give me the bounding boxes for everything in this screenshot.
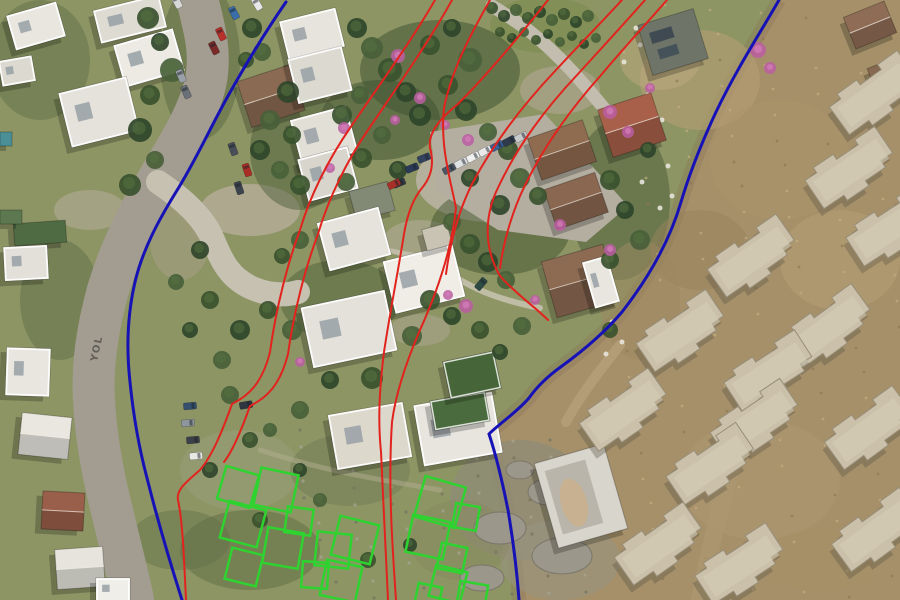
building-roof bbox=[96, 578, 130, 600]
ground-speckle bbox=[683, 431, 686, 434]
ground-speckle bbox=[719, 59, 722, 62]
ground-speckle bbox=[772, 88, 775, 91]
tree-highlight bbox=[294, 178, 305, 189]
rooftop-unit bbox=[5, 66, 14, 75]
ground-speckle bbox=[798, 266, 801, 269]
bougainvillea-highlight bbox=[557, 221, 563, 227]
tree-highlight bbox=[514, 171, 525, 182]
ground-speckle bbox=[788, 216, 791, 219]
bougainvillea-highlight bbox=[648, 85, 653, 90]
ground-speckle bbox=[877, 473, 880, 476]
scrub-speckle bbox=[529, 515, 532, 518]
scrub-speckle bbox=[407, 561, 410, 564]
tree-highlight bbox=[149, 153, 159, 163]
tree-highlight bbox=[532, 189, 542, 199]
ground-speckle bbox=[690, 182, 693, 185]
building-roof bbox=[0, 210, 22, 224]
ground-speckle bbox=[817, 93, 820, 96]
ground-speckle bbox=[855, 347, 858, 350]
tree-highlight bbox=[400, 85, 411, 96]
tree-highlight bbox=[205, 464, 214, 473]
scrub-speckle bbox=[405, 527, 408, 530]
tree-highlight bbox=[556, 37, 562, 43]
bougainvillea-highlight bbox=[625, 128, 631, 134]
tree-highlight bbox=[462, 51, 475, 64]
tree-highlight bbox=[392, 163, 402, 173]
scrub-speckle bbox=[476, 474, 479, 477]
ground-speckle bbox=[642, 478, 645, 481]
ground-speckle bbox=[800, 292, 803, 295]
car-body bbox=[186, 436, 200, 444]
tree-highlight bbox=[354, 88, 364, 98]
scrub-speckle bbox=[511, 439, 514, 442]
bougainvillea-highlight bbox=[465, 136, 471, 142]
ground-speckle bbox=[738, 486, 741, 489]
ground-speckle bbox=[805, 17, 808, 20]
tree-highlight bbox=[281, 84, 293, 96]
ground-speckle bbox=[834, 494, 837, 497]
tree-highlight bbox=[592, 33, 598, 39]
boulder bbox=[506, 461, 534, 479]
scrub-speckle bbox=[317, 521, 320, 524]
ground-speckle bbox=[865, 397, 868, 400]
tree-highlight bbox=[500, 11, 507, 18]
ground-speckle bbox=[686, 130, 689, 133]
ground-speckle bbox=[796, 240, 799, 243]
scrub-speckle bbox=[422, 586, 425, 589]
scrub-speckle bbox=[547, 591, 550, 594]
tree-highlight bbox=[459, 102, 471, 114]
ground-speckle bbox=[700, 232, 703, 235]
ground-speckle bbox=[681, 405, 684, 408]
bougainvillea-highlight bbox=[298, 359, 303, 364]
tree-highlight bbox=[634, 233, 645, 244]
tree-highlight bbox=[315, 494, 323, 502]
tree-highlight bbox=[194, 243, 204, 253]
ground-speckle bbox=[678, 106, 681, 109]
tree-highlight bbox=[234, 323, 245, 334]
tree-highlight bbox=[446, 309, 456, 319]
tree-highlight bbox=[365, 370, 377, 382]
scrub-speckle bbox=[584, 590, 587, 593]
scrub-speckle bbox=[302, 496, 305, 499]
ground-speckle bbox=[757, 313, 760, 316]
tree-highlight bbox=[277, 250, 286, 259]
tree-highlight bbox=[495, 346, 504, 355]
bougainvillea-highlight bbox=[328, 165, 333, 170]
ground-speckle bbox=[714, 334, 717, 337]
tree-highlight bbox=[464, 171, 474, 181]
scrub-speckle bbox=[441, 509, 444, 512]
tree-highlight bbox=[524, 13, 531, 20]
scrub-speckle bbox=[318, 538, 321, 541]
rock bbox=[670, 194, 675, 199]
tree-highlight bbox=[516, 319, 526, 329]
scrub-speckle bbox=[512, 456, 515, 459]
tree-highlight bbox=[274, 163, 284, 173]
scrub-speckle bbox=[369, 545, 372, 548]
scrub-speckle bbox=[494, 550, 497, 553]
building-roof bbox=[0, 132, 12, 146]
ground-speckle bbox=[791, 515, 794, 518]
existing-building bbox=[11, 412, 72, 465]
tree-highlight bbox=[224, 388, 234, 398]
scrub-speckle bbox=[442, 526, 445, 529]
car-windshield bbox=[191, 403, 194, 409]
tree-highlight bbox=[264, 113, 275, 124]
rooftop-unit bbox=[102, 585, 109, 592]
rooftop-unit bbox=[344, 425, 363, 444]
scrub-speckle bbox=[319, 555, 322, 558]
tree-highlight bbox=[406, 329, 417, 340]
ground-speckle bbox=[843, 271, 846, 274]
ground-speckle bbox=[860, 72, 863, 75]
roof-slope-shade bbox=[41, 510, 84, 531]
rock bbox=[640, 180, 645, 185]
ground-speckle bbox=[803, 591, 806, 594]
tree-highlight bbox=[171, 276, 180, 285]
boulder bbox=[474, 512, 526, 544]
ground-speckle bbox=[741, 185, 744, 188]
ground-speckle bbox=[743, 211, 746, 214]
bougainvillea-highlight bbox=[393, 117, 398, 122]
tree-highlight bbox=[365, 40, 377, 52]
tree-highlight bbox=[185, 324, 194, 333]
tree-highlight bbox=[265, 424, 273, 432]
rooftop-unit bbox=[319, 317, 341, 339]
bougainvillea-highlight bbox=[463, 302, 470, 309]
car-windshield bbox=[197, 453, 200, 459]
ground-speckle bbox=[688, 156, 691, 159]
scrub-speckle bbox=[404, 510, 407, 513]
tree-highlight bbox=[532, 35, 538, 41]
ground-speckle bbox=[650, 502, 653, 505]
rooftop-unit bbox=[12, 256, 22, 267]
ground-speckle bbox=[827, 143, 830, 146]
rock bbox=[658, 206, 663, 211]
map-canvas: YOL bbox=[0, 0, 900, 600]
tree-highlight bbox=[474, 323, 484, 333]
existing-building bbox=[35, 491, 85, 536]
scrub-speckle bbox=[440, 492, 443, 495]
tree-highlight bbox=[255, 514, 264, 523]
scrub-speckle bbox=[371, 579, 374, 582]
tree-highlight bbox=[123, 177, 135, 189]
tree-highlight bbox=[512, 5, 519, 12]
ground-speckle bbox=[848, 596, 851, 599]
rock bbox=[622, 60, 627, 65]
tree-highlight bbox=[254, 143, 265, 154]
tree-highlight bbox=[141, 10, 153, 22]
car-body bbox=[189, 452, 203, 460]
tree-highlight bbox=[144, 88, 155, 99]
ground-speckle bbox=[774, 114, 777, 117]
tree-highlight bbox=[464, 237, 475, 248]
bougainvillea-highlight bbox=[607, 246, 613, 252]
car bbox=[183, 402, 197, 410]
tree-highlight bbox=[286, 128, 296, 138]
tree-highlight bbox=[572, 17, 579, 24]
bougainvillea-highlight bbox=[533, 297, 538, 302]
scrub-speckle bbox=[546, 574, 549, 577]
scrub-speckle bbox=[510, 592, 513, 595]
tree-highlight bbox=[356, 151, 367, 162]
tree-highlight bbox=[324, 373, 334, 383]
scrub-speckle bbox=[548, 438, 551, 441]
scrub-speckle bbox=[301, 479, 304, 482]
ground-speckle bbox=[628, 376, 631, 379]
ground-speckle bbox=[882, 198, 885, 201]
car bbox=[181, 419, 195, 427]
building-roof bbox=[3, 245, 49, 281]
scrub-speckle bbox=[334, 580, 337, 583]
ground-speckle bbox=[676, 80, 679, 83]
rooftop-unit bbox=[14, 361, 24, 376]
scrub-speckle bbox=[353, 503, 356, 506]
scrub-speckle bbox=[530, 532, 533, 535]
bougainvillea-highlight bbox=[341, 124, 347, 130]
tree-highlight bbox=[544, 29, 550, 35]
scrub-speckle bbox=[477, 491, 480, 494]
ground-speckle bbox=[776, 140, 779, 143]
tree-highlight bbox=[204, 293, 214, 303]
car bbox=[186, 436, 200, 444]
ground-speckle bbox=[760, 12, 763, 15]
scrub-speckle bbox=[583, 573, 586, 576]
scrub-speckle bbox=[355, 537, 358, 540]
scrub-speckle bbox=[457, 551, 460, 554]
ground-speckle bbox=[786, 190, 789, 193]
tree-highlight bbox=[548, 15, 555, 22]
tree-highlight bbox=[262, 303, 272, 313]
tree-highlight bbox=[643, 144, 652, 153]
ground-speckle bbox=[709, 9, 712, 12]
tree-highlight bbox=[619, 203, 629, 213]
rock bbox=[666, 164, 671, 169]
ground-speckle bbox=[781, 465, 784, 468]
ground-speckle bbox=[721, 85, 724, 88]
ground-speckle bbox=[733, 161, 736, 164]
tree-highlight bbox=[482, 125, 492, 135]
ground-speckle bbox=[745, 237, 748, 240]
tree-highlight bbox=[604, 173, 615, 184]
ground-speckle bbox=[894, 274, 897, 277]
ground-speckle bbox=[645, 177, 648, 180]
bougainvillea-highlight bbox=[754, 45, 762, 53]
tree-highlight bbox=[336, 108, 347, 119]
scrub-speckle bbox=[298, 428, 301, 431]
ground-speckle bbox=[731, 135, 734, 138]
ground-speckle bbox=[822, 418, 825, 421]
tree-highlight bbox=[245, 434, 254, 443]
tree-highlight bbox=[246, 21, 257, 32]
ground-speckle bbox=[841, 245, 844, 248]
ground-speckle bbox=[839, 219, 842, 222]
car-body bbox=[181, 419, 195, 427]
ground-speckle bbox=[626, 350, 629, 353]
tree-highlight bbox=[132, 121, 145, 134]
tree-highlight bbox=[413, 107, 425, 119]
tree-highlight bbox=[216, 353, 226, 363]
ground-speckle bbox=[647, 203, 650, 206]
tree-highlight bbox=[584, 11, 591, 18]
building-roof bbox=[5, 347, 51, 397]
existing-building bbox=[0, 347, 51, 402]
car-windshield bbox=[189, 420, 192, 426]
ground-speckle bbox=[729, 109, 732, 112]
tree-highlight bbox=[568, 31, 574, 37]
ground-speckle bbox=[717, 33, 720, 36]
ground-speckle bbox=[762, 38, 765, 41]
existing-building bbox=[0, 245, 49, 287]
ground-speckle bbox=[863, 371, 866, 374]
tree-highlight bbox=[295, 464, 303, 472]
bougainvillea-highlight bbox=[767, 64, 773, 70]
ground-speckle bbox=[784, 164, 787, 167]
scrub-speckle bbox=[299, 445, 302, 448]
ground-speckle bbox=[820, 392, 823, 395]
tree-highlight bbox=[294, 403, 304, 413]
ground-speckle bbox=[695, 507, 698, 510]
tree-highlight bbox=[508, 33, 514, 39]
ground-speckle bbox=[726, 410, 729, 413]
car bbox=[189, 452, 203, 460]
tree-highlight bbox=[560, 9, 567, 16]
ground-speckle bbox=[896, 300, 899, 303]
bougainvillea-highlight bbox=[607, 108, 614, 115]
ground-speckle bbox=[640, 452, 643, 455]
tree-highlight bbox=[496, 27, 502, 33]
rock bbox=[604, 352, 609, 357]
ground-speckle bbox=[659, 279, 662, 282]
ground-speckle bbox=[793, 541, 796, 544]
ground-speckle bbox=[836, 520, 839, 523]
tree-highlight bbox=[494, 198, 505, 209]
ground-speckle bbox=[779, 439, 782, 442]
tree-highlight bbox=[154, 35, 164, 45]
tree-highlight bbox=[351, 21, 362, 32]
scrub-speckle bbox=[372, 596, 375, 599]
car-windshield bbox=[194, 437, 197, 443]
ground-speckle bbox=[702, 258, 705, 261]
scrub-speckle bbox=[352, 486, 355, 489]
ground-speckle bbox=[812, 368, 815, 371]
aerial-orthophoto-map: YOL bbox=[0, 0, 900, 600]
car-body bbox=[183, 402, 197, 410]
bougainvillea-highlight bbox=[417, 94, 423, 100]
bougainvillea-highlight bbox=[446, 292, 451, 297]
existing-building bbox=[90, 578, 130, 600]
rock bbox=[620, 340, 625, 345]
tree-highlight bbox=[446, 21, 456, 31]
tree-highlight bbox=[376, 128, 386, 138]
ground-speckle bbox=[815, 67, 818, 70]
ground-speckle bbox=[891, 575, 894, 578]
